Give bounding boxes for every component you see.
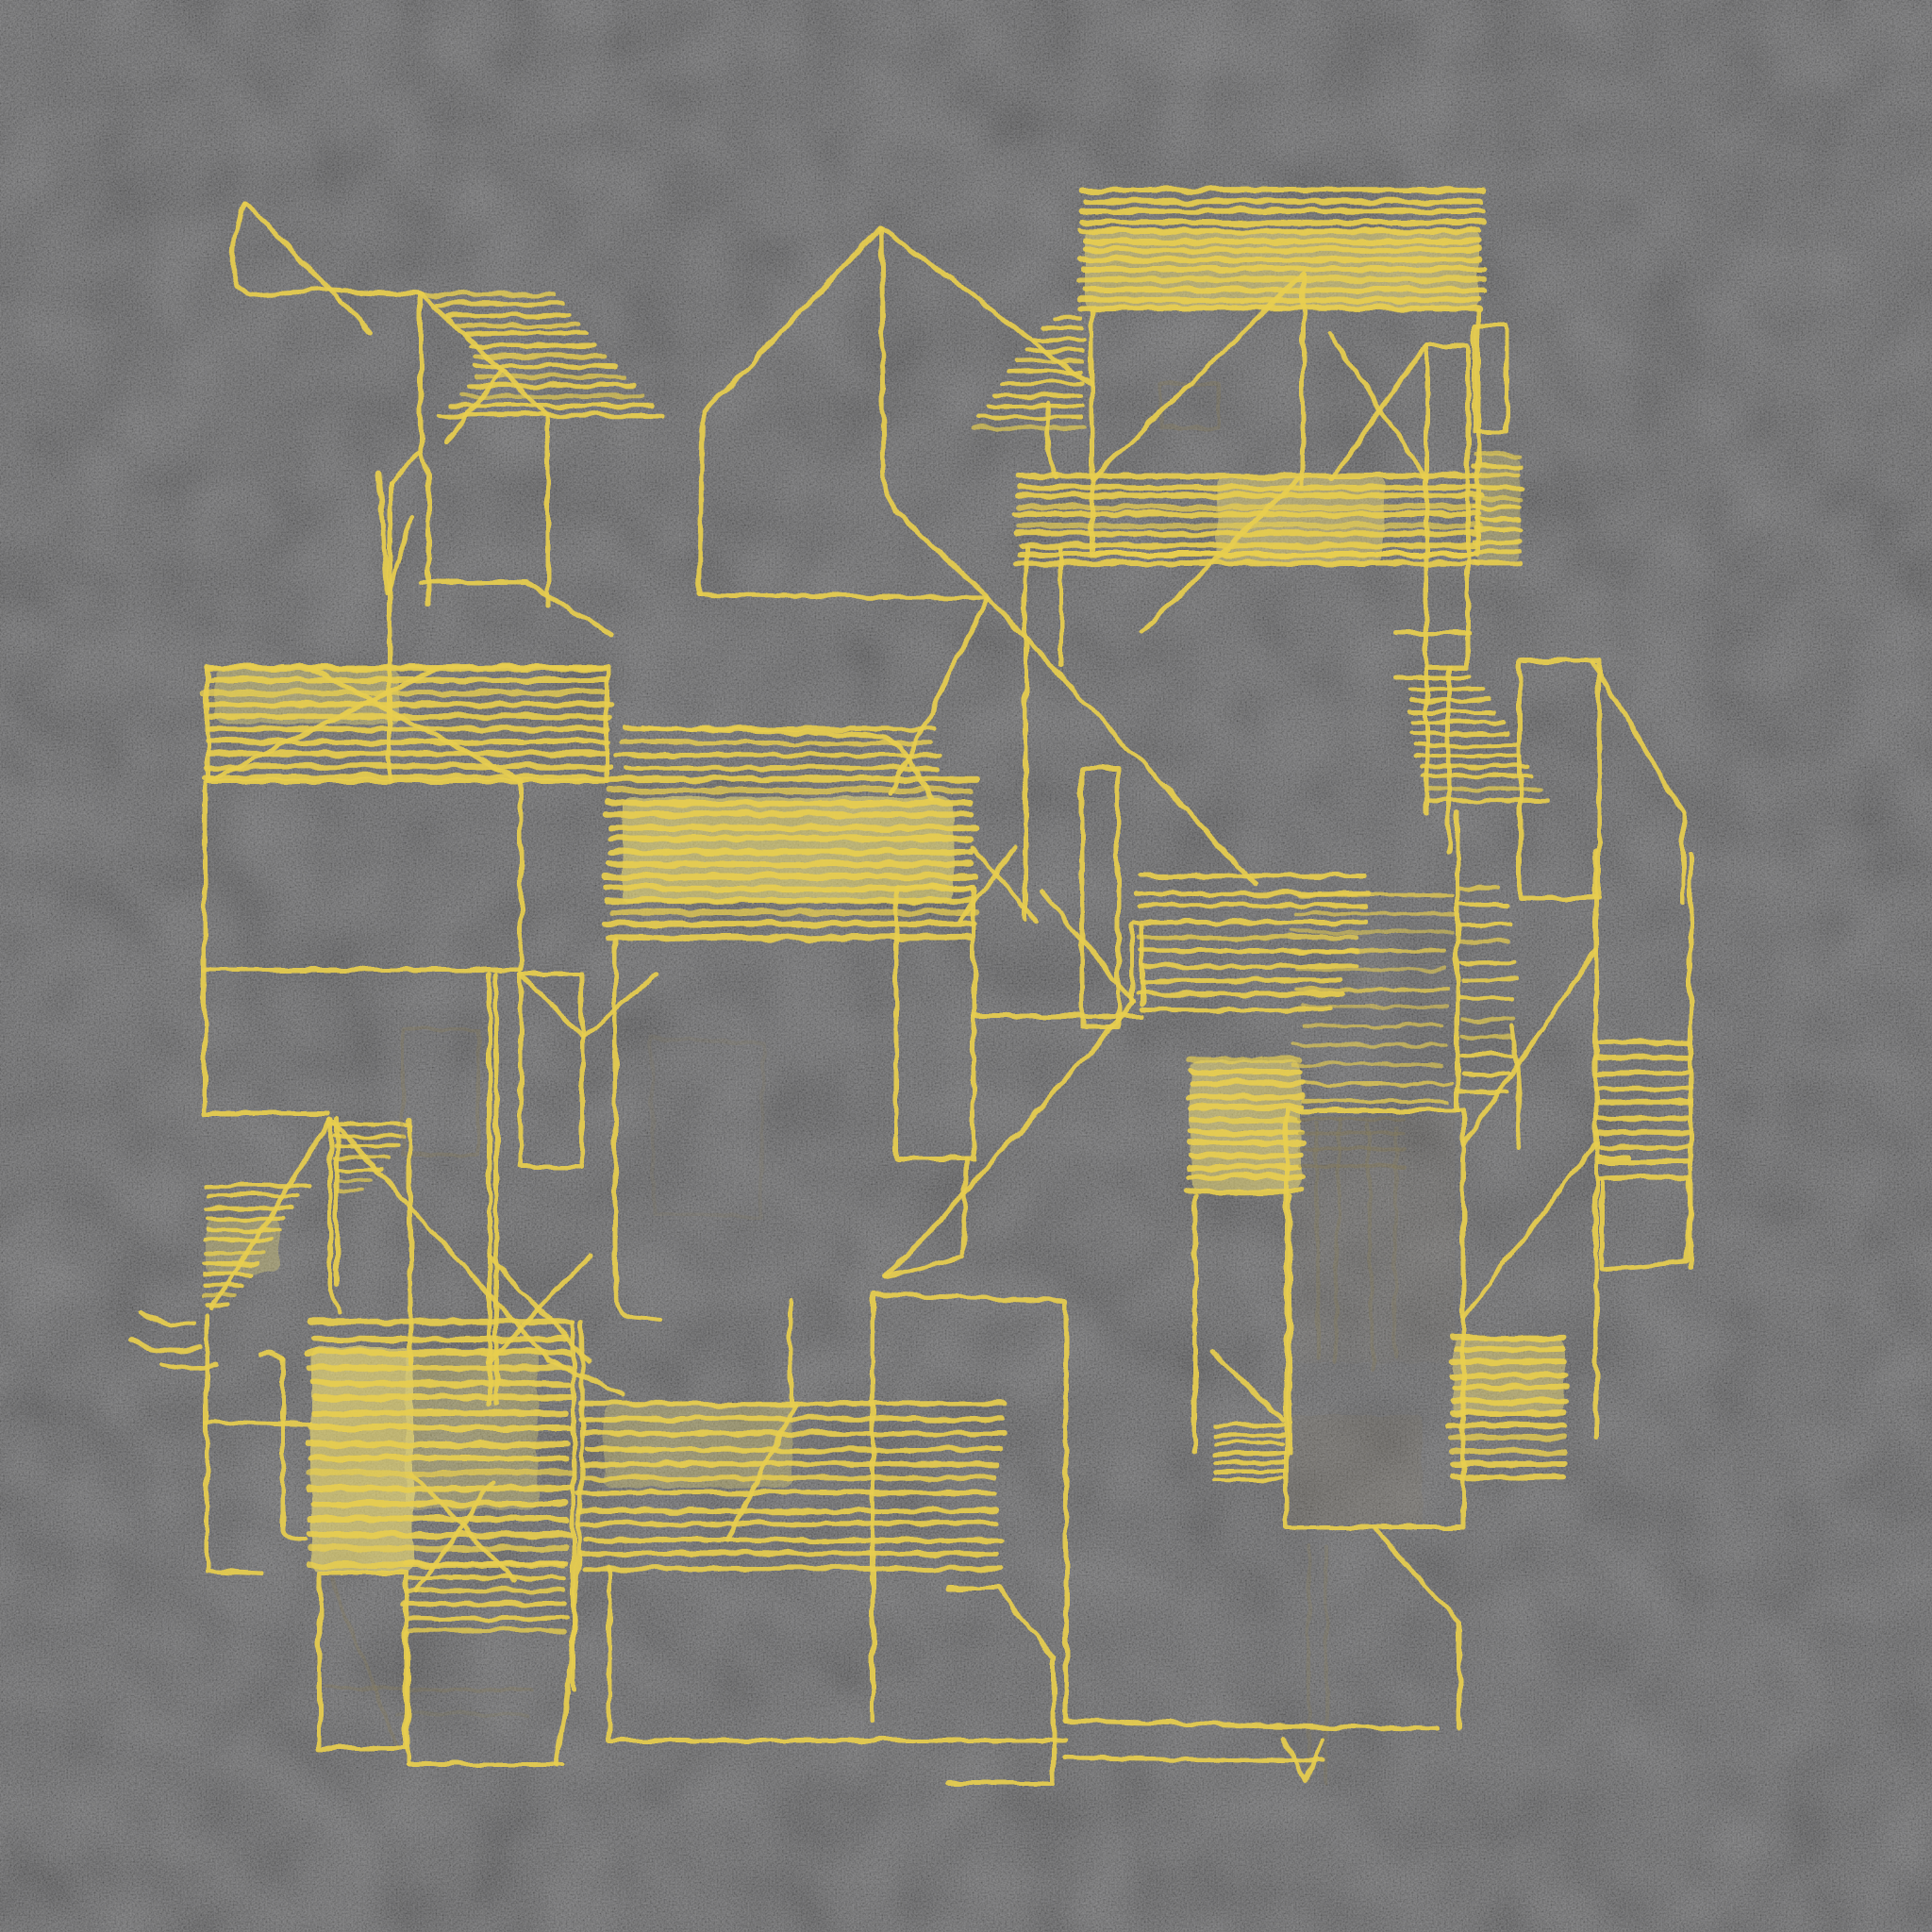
cross-line [207,1423,311,1425]
hatch-line [1600,1042,1689,1043]
hatch-line [1452,1476,1563,1477]
hatch-line [1080,308,1480,308]
hatch-line [1409,690,1483,691]
hatch-line [471,345,595,346]
hatch-line [608,803,970,804]
hatch-line [1596,1089,1690,1090]
hatch-line [586,1540,1001,1541]
hatch-line [1423,775,1532,776]
hatch-line [1476,528,1520,529]
hatch-line [1142,1009,1329,1010]
hatch-line [1452,1437,1565,1438]
hatch-line [1292,1064,1442,1065]
hatch-line [205,692,603,693]
hatch-line [1474,542,1520,543]
hatch-line [205,777,603,778]
hatch-line [311,1457,565,1458]
hatch-line [1457,1349,1563,1350]
hatch-line [1003,383,1082,384]
hatch-line [1015,514,1479,515]
hatch-line [1188,1176,1301,1177]
hatch-line [1598,1118,1687,1119]
hatch-line [1297,990,1446,991]
hatch-line [1080,231,1477,232]
hatch-line [1189,1059,1300,1060]
hatch-line [582,1463,999,1464]
hatch-line [309,1488,572,1489]
hatch-line [989,406,1082,407]
hatch-line [584,1433,1003,1434]
hatch-line [1303,1025,1444,1026]
artwork-frame [0,0,1932,1932]
hatch-line [1144,966,1357,967]
hatch-line [627,768,936,769]
hatch-line [612,852,972,853]
hatch-line [464,395,641,396]
hatch-line [1416,756,1521,757]
hatch-line [310,1548,566,1549]
hatch-line [406,1591,562,1591]
hatch-line [1214,1454,1285,1455]
hatch-line [1019,475,1480,476]
hatch-line [1453,1362,1562,1363]
hatch-line [611,838,972,839]
hatch-line [408,1630,565,1631]
hatch-line [475,356,606,357]
hatch-line [471,385,635,386]
hatch-line [1214,1462,1283,1463]
hatch-line [588,1449,1001,1450]
hatch-line [1292,932,1452,933]
hatch-line [1084,222,1485,223]
hatch-line [1188,1167,1298,1168]
hatch-line [1190,1097,1302,1098]
hatch-line [1300,895,1452,896]
hatch-line [974,427,1084,428]
hatch-line [1459,999,1512,1000]
hatch-line [206,741,608,742]
hatch-line [309,1535,570,1536]
hatch-line [205,1264,257,1265]
hatch-line [612,912,977,913]
hatch-line [409,1577,564,1578]
hatch-line [1458,924,1510,925]
hatch-line [994,395,1080,396]
hatch-line [208,1306,228,1307]
hatch-line [1462,1037,1512,1038]
hatch-line [1293,950,1445,951]
hatch-line [467,333,586,334]
hatch-line [1214,1478,1283,1479]
abstract-line-artwork [0,0,1932,1932]
hatch-line [1215,1443,1281,1444]
hatch-line [308,1443,566,1444]
hatch-line [1474,487,1522,488]
hatch-line [1082,190,1483,191]
hatch-line [1475,454,1519,455]
hatch-line [1596,1058,1690,1058]
hatch-line [1597,1132,1689,1133]
hatch-line [458,325,579,326]
hatch-line [1462,1055,1513,1056]
hatch-line [580,1418,1001,1419]
bottom-line-b [1065,1757,1323,1760]
hatch-line [211,716,610,717]
hatch-line [1429,789,1541,790]
hatch-line [1414,745,1516,746]
hatch-line [581,1553,998,1554]
hatch-line [440,415,662,416]
hatch-line [1142,980,1341,981]
hatch-line [611,827,976,828]
hatch-line [1216,1424,1284,1425]
hatch-line [1452,1452,1566,1453]
hatch-line [1027,350,1083,351]
hatch-line [1463,1019,1515,1020]
hatch-line [1016,563,1478,564]
hatch-line [205,1274,252,1274]
hatch-line [1081,211,1483,212]
ghost-hline-b [396,1713,528,1715]
hatch-line [1296,913,1457,914]
hatch-line [409,1618,566,1619]
hatch-line [308,1352,570,1353]
hatch-line [609,938,971,939]
hatch-line [1020,507,1476,508]
band-b3-blob-0 [604,1403,792,1488]
hatch-line [206,1253,266,1254]
hatch-line [1018,360,1083,361]
hatch-line [335,1145,398,1146]
hatch-line [1463,1074,1508,1074]
hatch-line [1054,317,1080,318]
hatch-line [1139,937,1355,938]
hatch-line [1598,1177,1690,1178]
hatch-line [1421,766,1527,767]
hatch-line [206,1186,309,1187]
hatch-line [315,1397,571,1398]
hatch-line [607,900,971,901]
ghost-streak-4 [1394,1127,1396,1358]
hatch-line [581,1510,996,1511]
hatch-line [340,1180,371,1181]
hatch-line [1192,1083,1303,1084]
hatch-line [339,1191,361,1191]
hatch-line [622,742,931,743]
ghost-fill-rc [1286,1415,1423,1526]
hatch-line [1086,249,1479,250]
hatch-line [578,1492,994,1493]
hatch-line [314,1413,566,1414]
hatch-line [1475,552,1521,553]
hatch-line [207,766,611,767]
hatch-line [1188,1191,1300,1191]
page: { "meta": { "description": "Abstract geo… [0,0,1932,1932]
hatch-line [605,876,976,877]
